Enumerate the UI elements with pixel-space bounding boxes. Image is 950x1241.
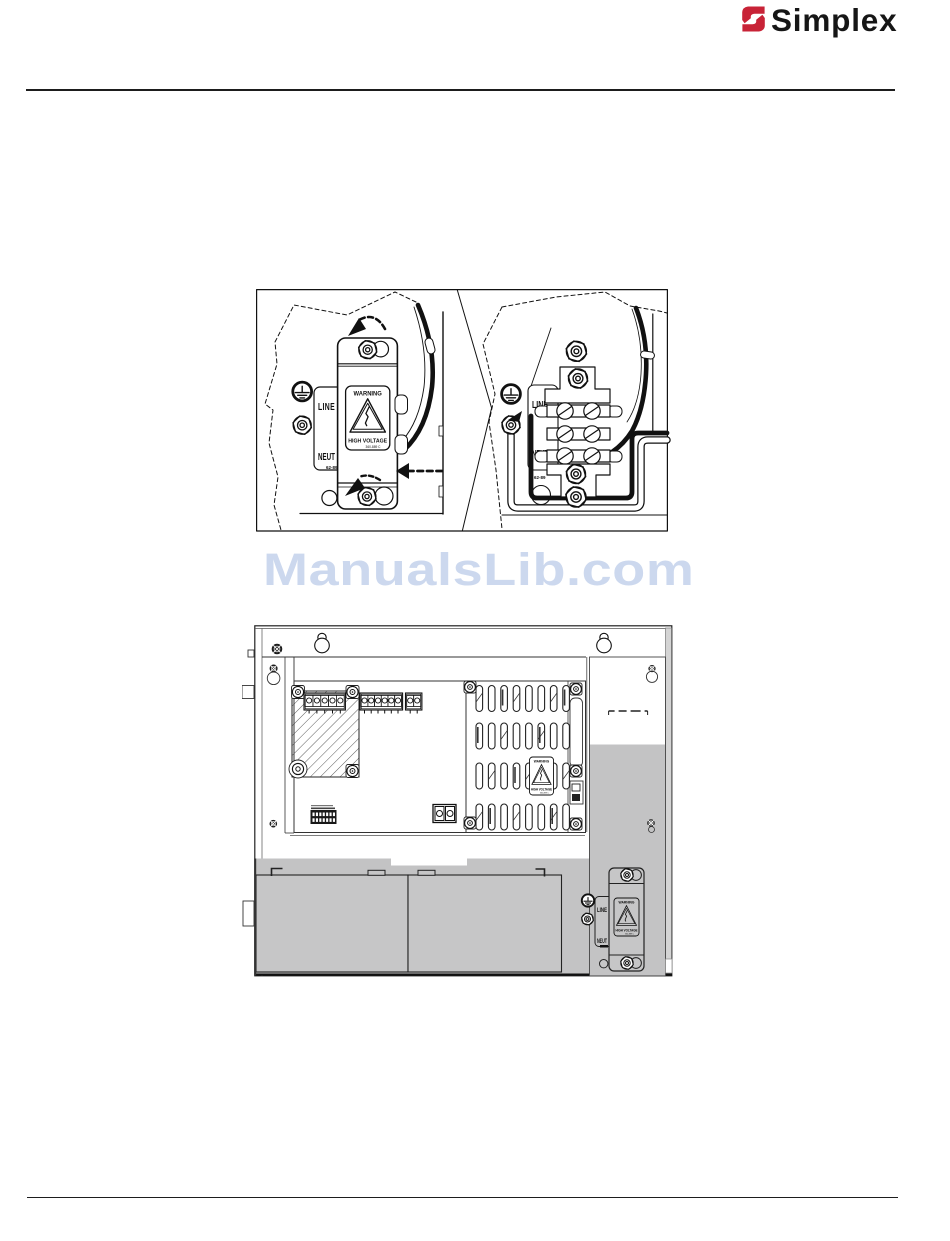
svg-text:62-89: 62-89: [534, 475, 546, 480]
svg-text:HIGH VOLTAGE: HIGH VOLTAGE: [348, 438, 387, 444]
svg-text:WARNING: WARNING: [534, 759, 549, 764]
svg-text:WARNING: WARNING: [619, 900, 635, 905]
svg-text:360-889 C: 360-889 C: [625, 934, 634, 936]
svg-text:360-889 C: 360-889 C: [366, 445, 382, 449]
svg-text:Simplex: Simplex: [771, 4, 897, 38]
svg-text:WARNING: WARNING: [354, 390, 382, 397]
svg-text:LINE: LINE: [318, 401, 335, 413]
svg-text:HIGH VOLTAGE: HIGH VOLTAGE: [616, 928, 639, 932]
svg-text:NEUT: NEUT: [597, 939, 607, 945]
svg-text:62-89: 62-89: [326, 465, 338, 470]
svg-text:360-889 C: 360-889 C: [540, 793, 549, 795]
svg-text:HIGH VOLTAGE: HIGH VOLTAGE: [531, 787, 553, 791]
svg-text:NEUT: NEUT: [318, 451, 335, 463]
svg-text:LINE: LINE: [597, 908, 607, 914]
